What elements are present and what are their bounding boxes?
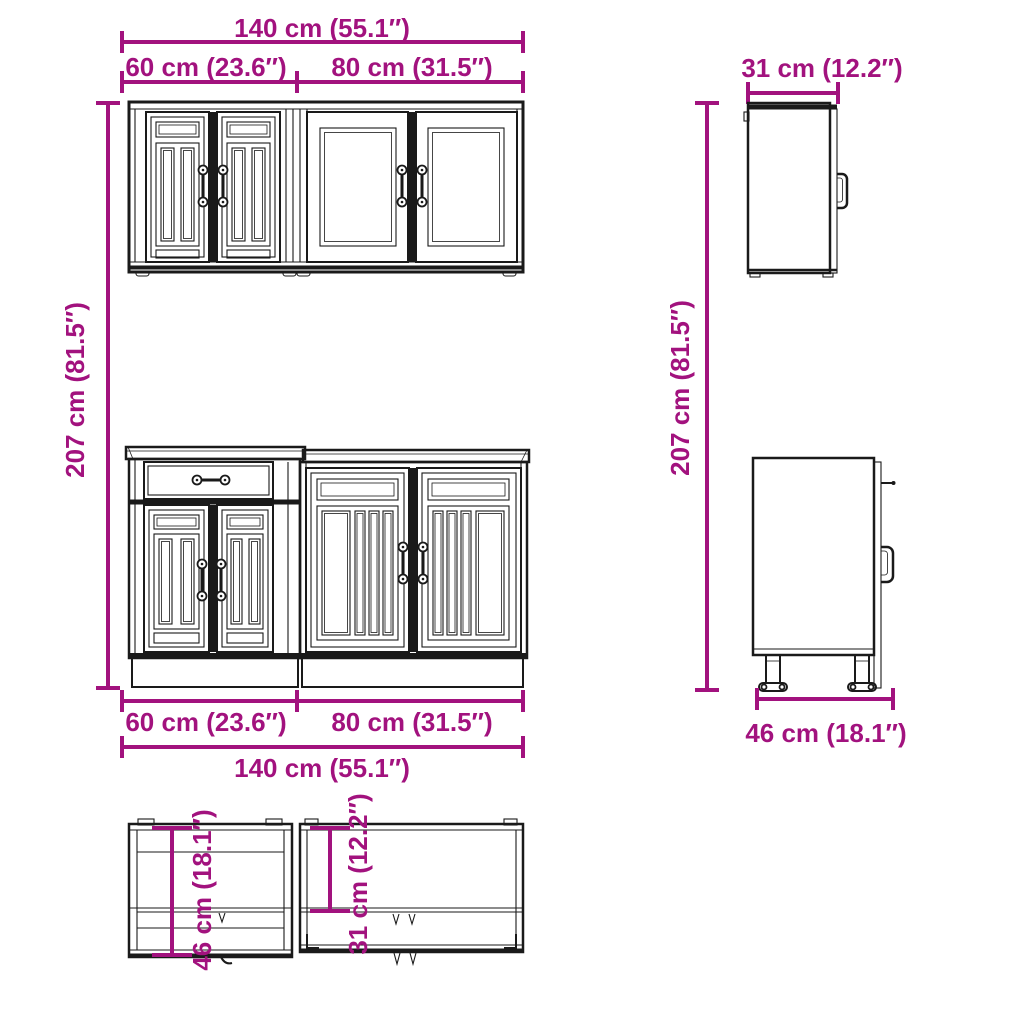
top-left-width-label: 60 cm (23.6″) xyxy=(125,52,286,82)
adjustable-foot xyxy=(848,655,876,691)
adjustable-foot xyxy=(759,655,787,691)
dim-top-total-width: 140 cm (55.1″) xyxy=(122,13,523,53)
top-total-width-label: 140 cm (55.1″) xyxy=(234,13,410,43)
door-handle xyxy=(399,543,408,584)
wall-depth-label: 31 cm (12.2″) xyxy=(741,53,902,83)
right-height-label: 207 cm (81.5″) xyxy=(665,300,695,476)
wall-unit-80-front xyxy=(307,109,517,262)
diagram-canvas: 140 cm (55.1″) 60 cm (23.6″) 80 cm (31.5… xyxy=(0,0,1024,1024)
left-height-label: 207 cm (81.5″) xyxy=(60,302,90,478)
hinge-mark xyxy=(409,914,415,924)
corner-bracket xyxy=(504,934,516,948)
dim-base-depth: 46 cm (18.1″) xyxy=(745,688,906,748)
dim-bottom-split-widths: 60 cm (23.6″) 80 cm (31.5″) xyxy=(122,690,523,737)
dim-left-height: 207 cm (81.5″) xyxy=(60,103,120,688)
dim-wall-depth: 31 cm (12.2″) xyxy=(741,53,902,104)
dim-topview-wall-depth: 31 cm (12.2″) xyxy=(310,793,373,954)
hinge-mark xyxy=(393,914,399,924)
door-handle xyxy=(219,166,228,207)
foot-mark xyxy=(410,953,416,964)
base-unit-80-front xyxy=(300,462,527,658)
base-unit-60-front xyxy=(129,459,300,658)
wall-cabinet-side-view xyxy=(744,103,847,277)
dim-right-height: 207 cm (81.5″) xyxy=(665,103,719,690)
drawer-handle xyxy=(193,476,230,485)
bottom-left-width-label: 60 cm (23.6″) xyxy=(125,707,286,737)
top-right-width-label: 80 cm (31.5″) xyxy=(331,52,492,82)
topview-wall-depth-label: 31 cm (12.2″) xyxy=(343,793,373,954)
wall-unit-60-front xyxy=(135,109,286,262)
door-handle xyxy=(418,166,427,207)
door-handle xyxy=(419,543,428,584)
bottom-right-width-label: 80 cm (31.5″) xyxy=(331,707,492,737)
wall-cabinets-front-view xyxy=(129,102,523,276)
base-cabinet-side-view xyxy=(753,458,896,691)
foot-mark xyxy=(394,953,400,964)
topview-base-depth-label: 46 cm (18.1″) xyxy=(187,809,217,970)
dimension-diagram: 140 cm (55.1″) 60 cm (23.6″) 80 cm (31.5… xyxy=(0,0,1024,1024)
base-depth-label: 46 cm (18.1″) xyxy=(745,718,906,748)
plinth xyxy=(302,658,523,687)
dim-bottom-total-width: 140 cm (55.1″) xyxy=(122,736,523,783)
corner-bracket xyxy=(307,934,319,948)
dim-top-split-widths: 60 cm (23.6″) 80 cm (31.5″) xyxy=(122,52,523,93)
hinge-mark xyxy=(219,913,225,922)
door-handle xyxy=(398,166,407,207)
bottom-total-width-label: 140 cm (55.1″) xyxy=(234,753,410,783)
plinth xyxy=(132,658,298,687)
base-cabinets-front-view xyxy=(126,447,529,687)
wall-cabinet-top-view xyxy=(300,819,523,964)
door-handle xyxy=(199,166,208,207)
dim-topview-base-depth: 46 cm (18.1″) xyxy=(152,809,217,970)
